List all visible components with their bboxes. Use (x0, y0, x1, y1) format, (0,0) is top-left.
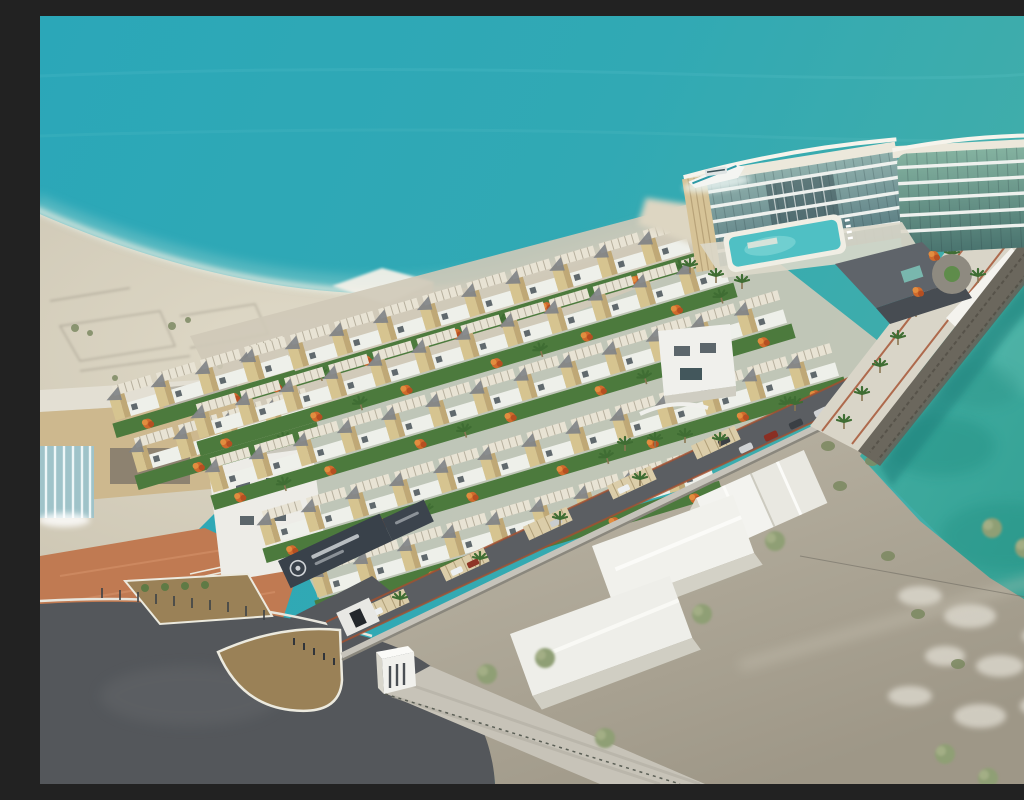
waterfall-feature (40, 446, 94, 527)
aerial-rendering: Aerial 3D rendering of a beachfront reso… (40, 16, 1024, 784)
rendering-canvas: Aerial 3D rendering of a beachfront reso… (40, 16, 1024, 784)
hotel-wing-right (892, 133, 1024, 254)
gatehouse (376, 646, 416, 694)
